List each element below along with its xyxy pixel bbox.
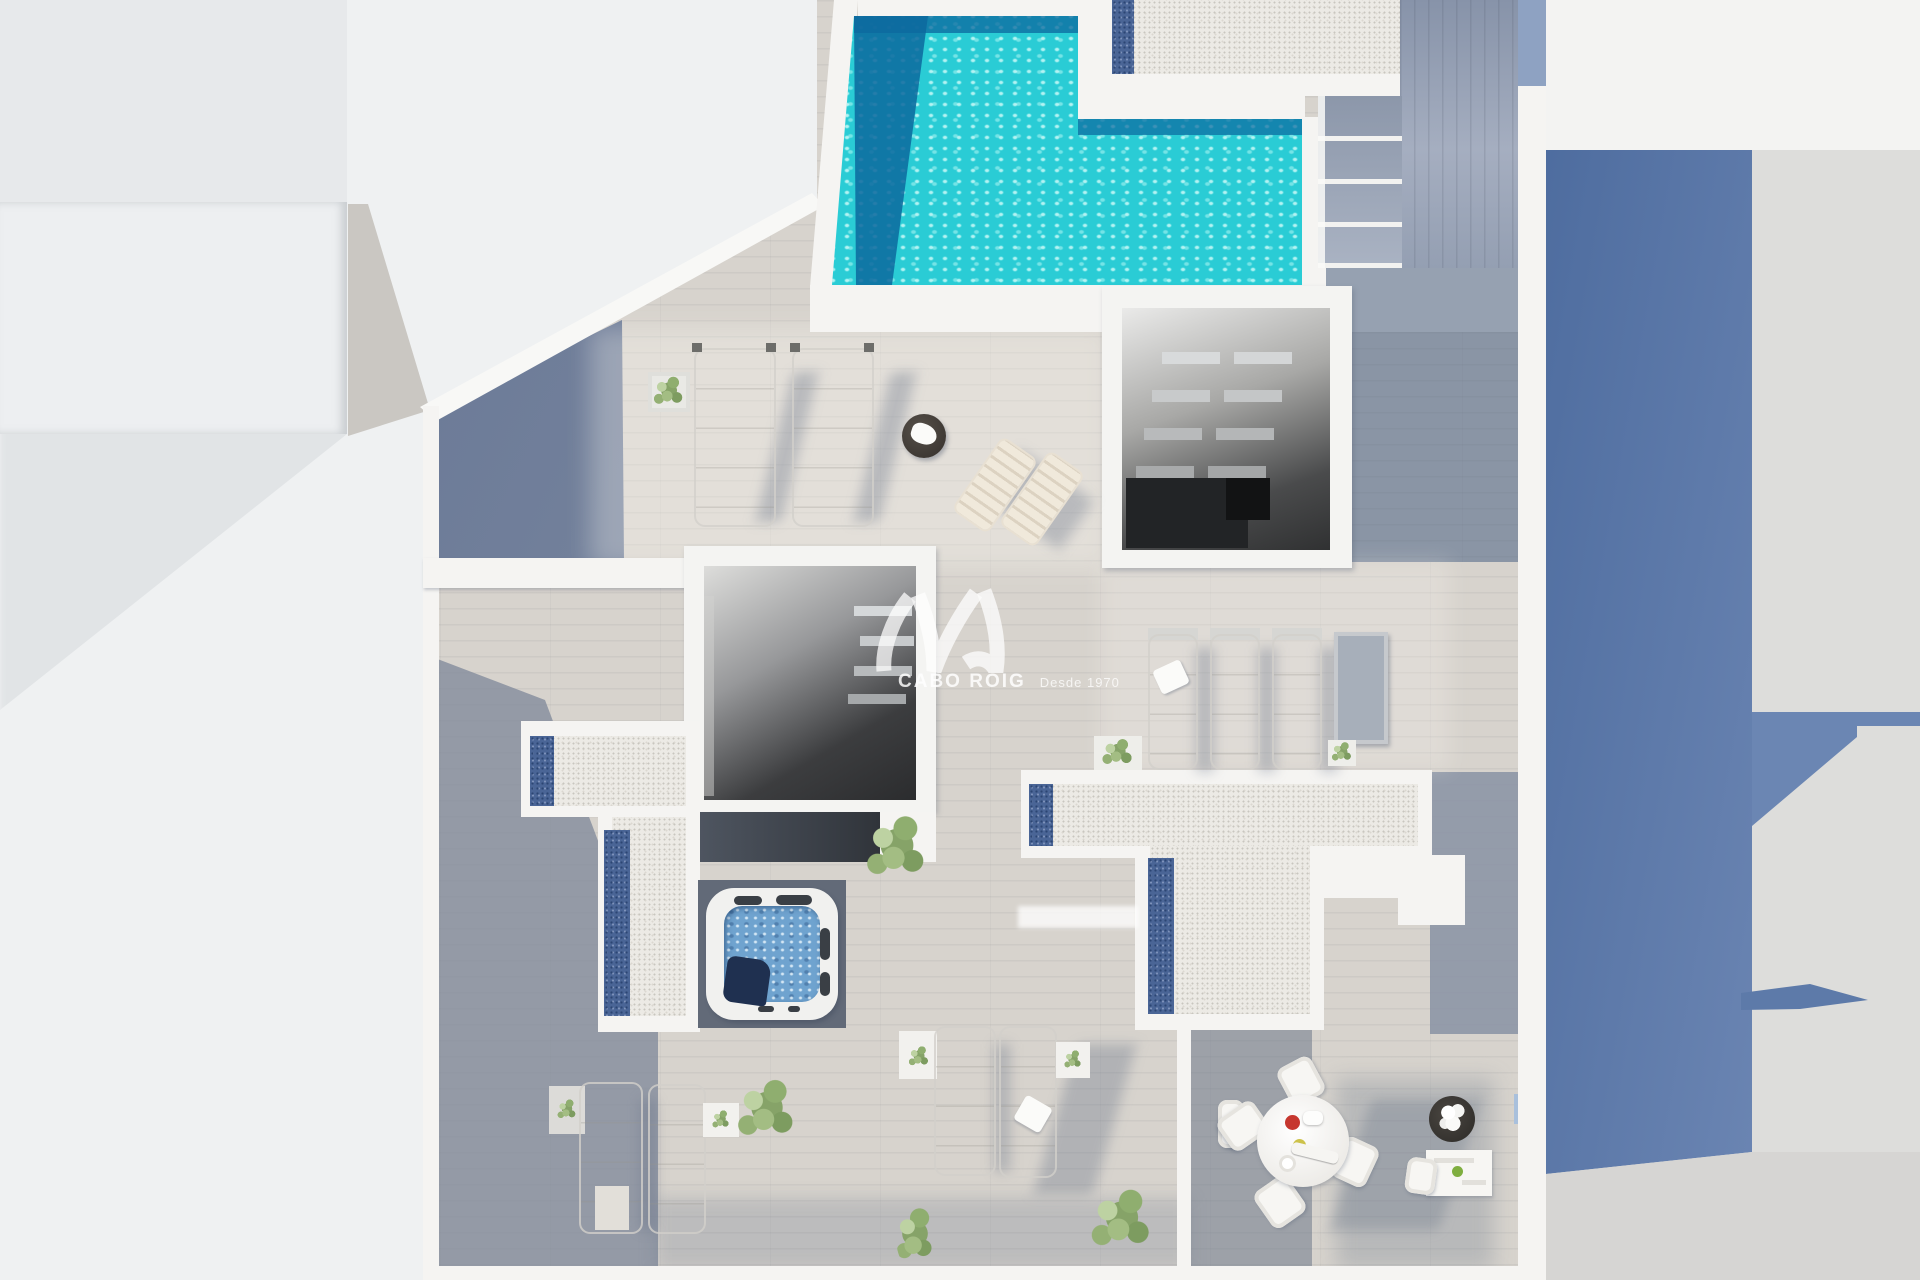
neighbor-wall-sunlit-top [1546,0,1920,150]
white-flowers [1437,1100,1469,1136]
east-blue-strip-top [1029,784,1053,846]
stair-tread [1208,466,1266,478]
sunbed [794,350,872,525]
towel-on-table [909,420,940,447]
flower-pot [1429,1096,1475,1142]
stair-tread [1162,352,1220,364]
deck-planks-east [1352,332,1518,562]
parapet-east-shaded [1518,0,1546,86]
pool-deck-top [858,0,1080,16]
pitcher [1303,1111,1323,1125]
stair-tread [1224,390,1282,402]
stair-tread-edge [1318,179,1402,184]
brand-logo-icon [874,585,1009,673]
red-plate [1285,1115,1300,1130]
tray-line [1434,1158,1474,1163]
sunbed [696,350,774,525]
planter-shrub [651,375,687,409]
building-shadow-main [1546,0,1920,1280]
table-plant [907,1045,931,1069]
west-blue-strip-top [530,736,554,806]
table-plant [1063,1049,1083,1071]
render-canvas: CABO ROIGDesde 1970 [0,0,1920,1280]
deck-shadow-northeast [1326,268,1518,332]
plant-by-jacuzzi [862,812,932,886]
bush [733,1076,801,1146]
planter-shrub [1099,738,1137,768]
jacuzzi-headrest [734,896,762,905]
stair-tread [848,694,906,704]
wall-south-divider [1177,1020,1191,1268]
watermark-tagline: Desde 1970 [1040,675,1120,690]
gravel-terrace-border [1112,74,1400,96]
stair-tread [1216,428,1274,440]
round-side-table [902,414,946,458]
sunbed-frame [692,343,702,352]
watermark-brand: CABO ROIG [898,671,1026,692]
east-blue-strip-stem [1148,858,1174,1014]
stair-tread-edge [1318,222,1402,227]
parapet-west [423,406,439,1280]
jacuzzi-towel [722,955,772,1007]
watermark: CABO ROIGDesde 1970 [872,585,1132,695]
neighbor-building-right [1546,0,1920,1280]
sunbed-frame [864,343,874,352]
apple [1452,1166,1463,1177]
wall-glare-band [1018,906,1138,928]
west-pebble-top [536,736,686,806]
stair-tread [1136,466,1194,478]
stairwell-landing [1226,478,1270,520]
planter [1328,740,1356,766]
jacuzzi-headrest [820,972,830,996]
mesh-lounger [1334,632,1388,744]
neighbor-roof-top-left [0,0,347,202]
sunbed-planter [648,372,690,412]
lounger [1274,636,1320,768]
wall-west-horizontal [423,558,695,588]
bush [896,1203,934,1271]
gravel-terrace-north [1112,0,1400,74]
stair-tread [1152,390,1210,402]
sunbed-frame [766,343,776,352]
east-pebble-top [1036,784,1418,846]
parapet-south [423,1266,1546,1280]
side-table [549,1086,585,1134]
stair-tread [1144,428,1202,440]
deck-chair [1404,1156,1439,1196]
side-table [1056,1042,1090,1078]
stair-tread-edge [1318,136,1402,141]
lounger [936,1028,994,1174]
jacuzzi-jet [758,1006,774,1012]
parapet-east [1518,0,1546,1280]
north-stairwell [1102,286,1352,568]
bush [1086,1186,1158,1256]
table-plant [556,1098,578,1122]
serving-tray [1290,1141,1339,1164]
stairwell-door-slit [704,596,714,796]
planter-shrub [1330,741,1354,764]
central-stairwell-lower-void [700,812,880,862]
jacuzzi [706,888,838,1020]
cup [1279,1155,1296,1172]
gravel-blue-strip-north [1112,0,1134,74]
lounger [1150,636,1196,768]
stair-tread [1234,352,1292,364]
sunbed-frame [790,343,800,352]
dining-table [1257,1095,1349,1187]
lounger [1212,636,1258,768]
jacuzzi-headrest [820,928,830,960]
jacuzzi-jet [788,1006,800,1012]
stair-stringer [1318,96,1325,268]
east-pebble-stem [1150,846,1310,1014]
table-plant [711,1109,731,1131]
pool-stairs [1318,96,1402,268]
north-stairwell-void [1122,308,1330,550]
west-blue-strip-stem [604,830,630,1016]
planter [1094,736,1142,770]
side-table [899,1031,937,1079]
tray-line [1462,1180,1486,1185]
lounger [650,1086,704,1232]
jacuzzi-headrest [776,895,812,905]
neighbor-roof-left [0,202,347,434]
lounger-footrest [595,1186,629,1230]
stair-tread-edge [1318,263,1402,268]
